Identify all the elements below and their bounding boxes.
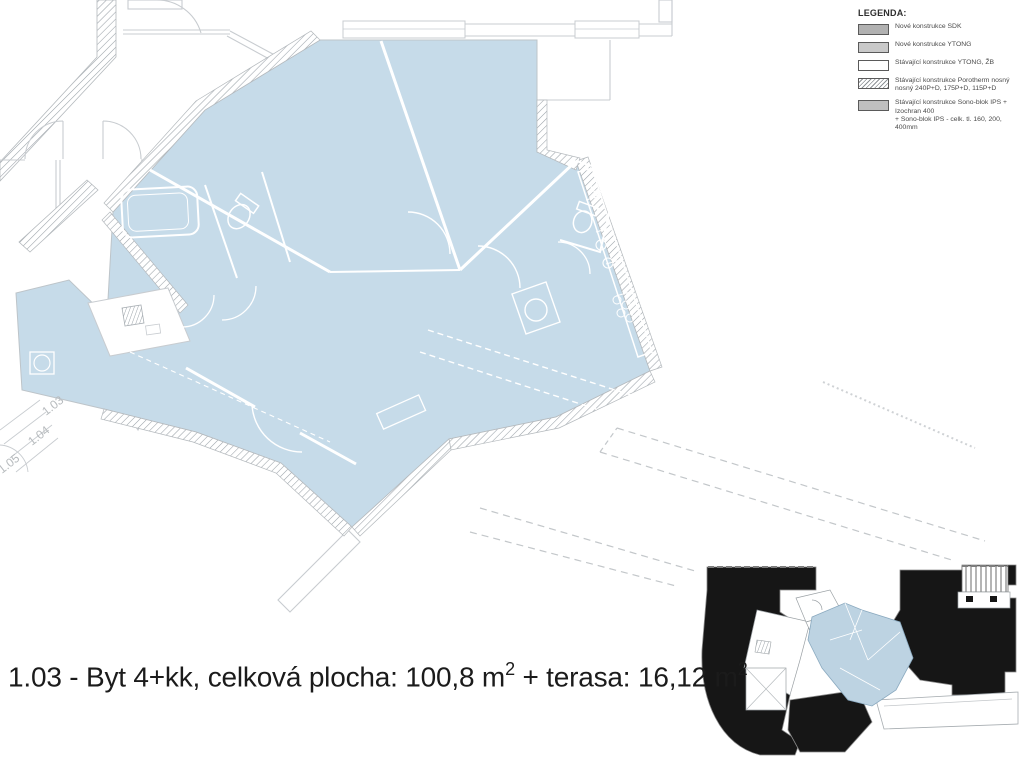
shaft [122, 305, 144, 326]
legend-swatch-ytong [858, 42, 889, 53]
legend-label: Stávající konstrukce Sono-blok IPS + Izo… [895, 99, 1022, 132]
window [343, 21, 465, 38]
legend-item: Stávající konstrukce YTONG, ŽB [858, 59, 1022, 71]
caption-superscript: 2 [505, 659, 515, 679]
wall-stub [278, 530, 360, 612]
window-topleft [128, 0, 182, 9]
legend-label: Stávající konstrukce Porotherm nosný nos… [895, 77, 1009, 93]
legend-label: Nové konstrukce YTONG [895, 41, 971, 49]
facade-windows [343, 21, 672, 38]
door-arc [103, 121, 141, 159]
minimap-terrace [876, 692, 1018, 729]
caption-text: 1.03 - Byt 4+kk, celková plocha: 100,8 m [8, 661, 505, 692]
legend-item: Stávající konstrukce Porotherm nosný nos… [858, 77, 1022, 93]
legend-item: Nové konstrukce SDK [858, 23, 1022, 35]
apartment-area [16, 21, 672, 536]
drawing-sheet: 1.03 1.04 1.05 [0, 0, 1024, 767]
legend-label: Stávající konstrukce YTONG, ŽB [895, 59, 994, 67]
legend-swatch-sonoblok [858, 100, 889, 111]
caption-superscript: 2 [738, 659, 748, 679]
legend-item: Nové konstrukce YTONG [858, 41, 1022, 53]
door-arc [155, 0, 201, 33]
legend-swatch-existing [858, 60, 889, 71]
apartment-caption: 1.03 - Byt 4+kk, celková plocha: 100,8 m… [8, 660, 748, 693]
room-label: 1.05 [0, 451, 23, 477]
window [575, 21, 639, 38]
legend-label: Nové konstrukce SDK [895, 23, 962, 31]
legend-title: LEGENDA: [858, 8, 1022, 18]
overview-minimap [702, 565, 1018, 755]
room-label: 1.04 [25, 423, 52, 449]
hatched-wall-topleft [0, 0, 116, 181]
caption-text: + terasa: 16,12 m [515, 661, 738, 692]
legend-swatch-porotherm [858, 78, 889, 89]
legend-swatch-sdk [858, 24, 889, 35]
minimap-staircase [962, 566, 1008, 592]
legend: LEGENDA: Nové konstrukce SDK Nové konstr… [858, 8, 1022, 138]
legend-item: Stávající konstrukce Sono-blok IPS + Izo… [858, 99, 1022, 132]
apartment-fill [16, 40, 650, 527]
